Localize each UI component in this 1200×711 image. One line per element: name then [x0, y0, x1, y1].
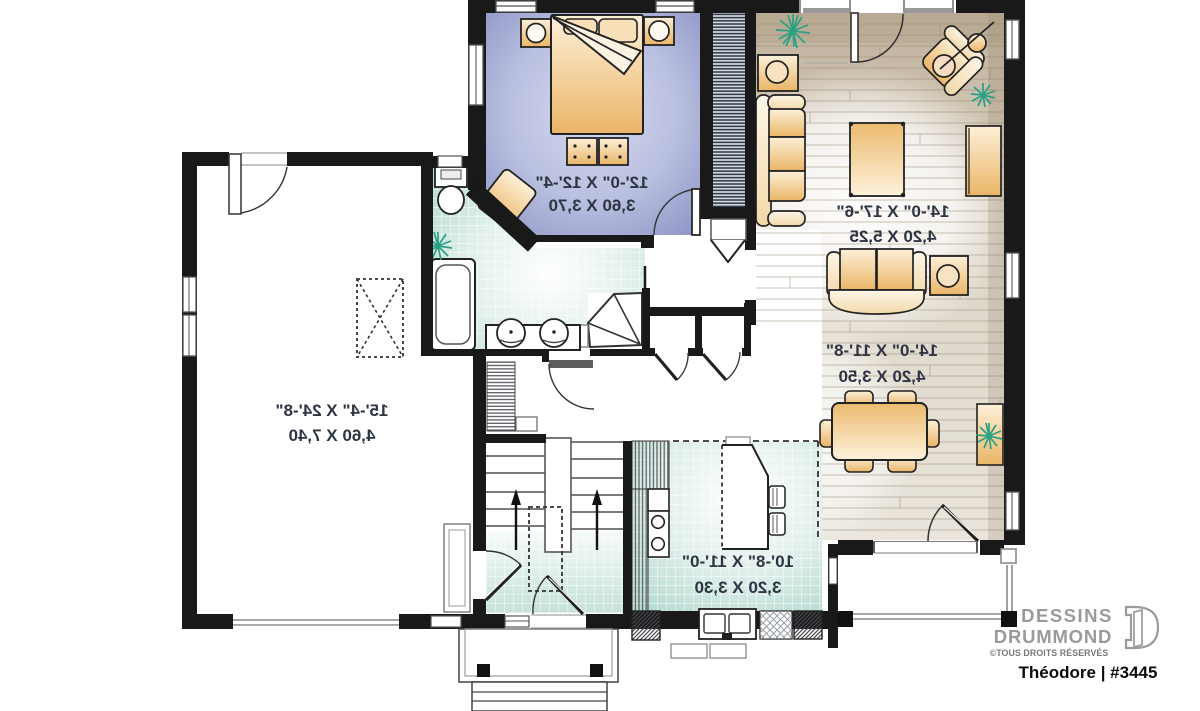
svg-text:3,60 X 3,70: 3,60 X 3,70: [549, 196, 636, 215]
svg-text:©TOUS DROITS RÉSERVÉS: ©TOUS DROITS RÉSERVÉS: [990, 648, 1109, 658]
svg-text:4,20 X 3,50: 4,20 X 3,50: [839, 367, 926, 386]
svg-text:4,20 X 5,25: 4,20 X 5,25: [850, 227, 937, 246]
svg-text:15'-4" X 24'-8": 15'-4" X 24'-8": [275, 401, 388, 420]
svg-text:DESSINS: DESSINS: [1021, 605, 1113, 626]
svg-text:Théodore | #3445: Théodore | #3445: [1019, 663, 1158, 682]
svg-text:12'-0" X 12'-4": 12'-0" X 12'-4": [535, 173, 648, 192]
svg-text:DRUMMOND: DRUMMOND: [994, 626, 1112, 647]
svg-text:3,20 X 3,30: 3,20 X 3,30: [695, 578, 782, 597]
svg-text:14'-0" X 17'-6": 14'-0" X 17'-6": [836, 202, 949, 221]
svg-text:4,60 X 7,40: 4,60 X 7,40: [289, 426, 376, 445]
svg-text:10'-8" X 11'-0": 10'-8" X 11'-0": [682, 552, 794, 571]
svg-text:14'-0" X 11'-8": 14'-0" X 11'-8": [826, 341, 938, 360]
